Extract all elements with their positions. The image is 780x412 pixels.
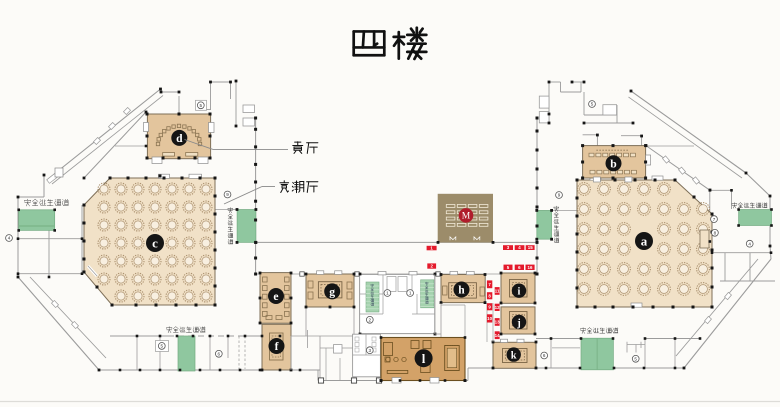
svg-text:13: 13: [495, 320, 500, 325]
svg-text:g: g: [329, 286, 335, 299]
svg-text:6: 6: [543, 353, 546, 358]
svg-text:h: h: [458, 284, 465, 297]
svg-text:5: 5: [634, 357, 637, 362]
svg-text:5: 5: [591, 102, 594, 107]
svg-text:f: f: [275, 340, 279, 353]
svg-text:6: 6: [218, 352, 221, 357]
svg-text:3: 3: [369, 348, 372, 353]
svg-text:M: M: [462, 212, 471, 222]
svg-text:5: 5: [161, 344, 164, 349]
svg-text:11: 11: [495, 289, 500, 294]
svg-text:c: c: [152, 236, 158, 251]
svg-text:4: 4: [748, 241, 751, 246]
svg-text:9: 9: [558, 193, 561, 198]
svg-text:7: 7: [713, 217, 716, 222]
svg-text:2: 2: [369, 318, 372, 323]
svg-text:i: i: [518, 287, 521, 298]
svg-text:k: k: [511, 350, 517, 361]
svg-text:15: 15: [528, 245, 533, 250]
svg-text:8: 8: [714, 231, 717, 236]
svg-text:1: 1: [386, 291, 389, 296]
svg-text:j: j: [516, 318, 520, 329]
svg-text:1: 1: [409, 291, 412, 296]
svg-text:e: e: [273, 290, 278, 303]
svg-text:b: b: [610, 158, 616, 171]
svg-text:9: 9: [226, 192, 229, 197]
svg-text:12: 12: [495, 305, 500, 310]
svg-text:d: d: [176, 132, 183, 145]
svg-text:4: 4: [8, 236, 11, 241]
svg-text:14: 14: [495, 333, 500, 338]
svg-text:10: 10: [487, 316, 492, 321]
svg-text:16: 16: [528, 265, 533, 270]
svg-text:l: l: [422, 351, 426, 366]
svg-text:5: 5: [200, 103, 203, 108]
svg-text:a: a: [641, 234, 648, 249]
